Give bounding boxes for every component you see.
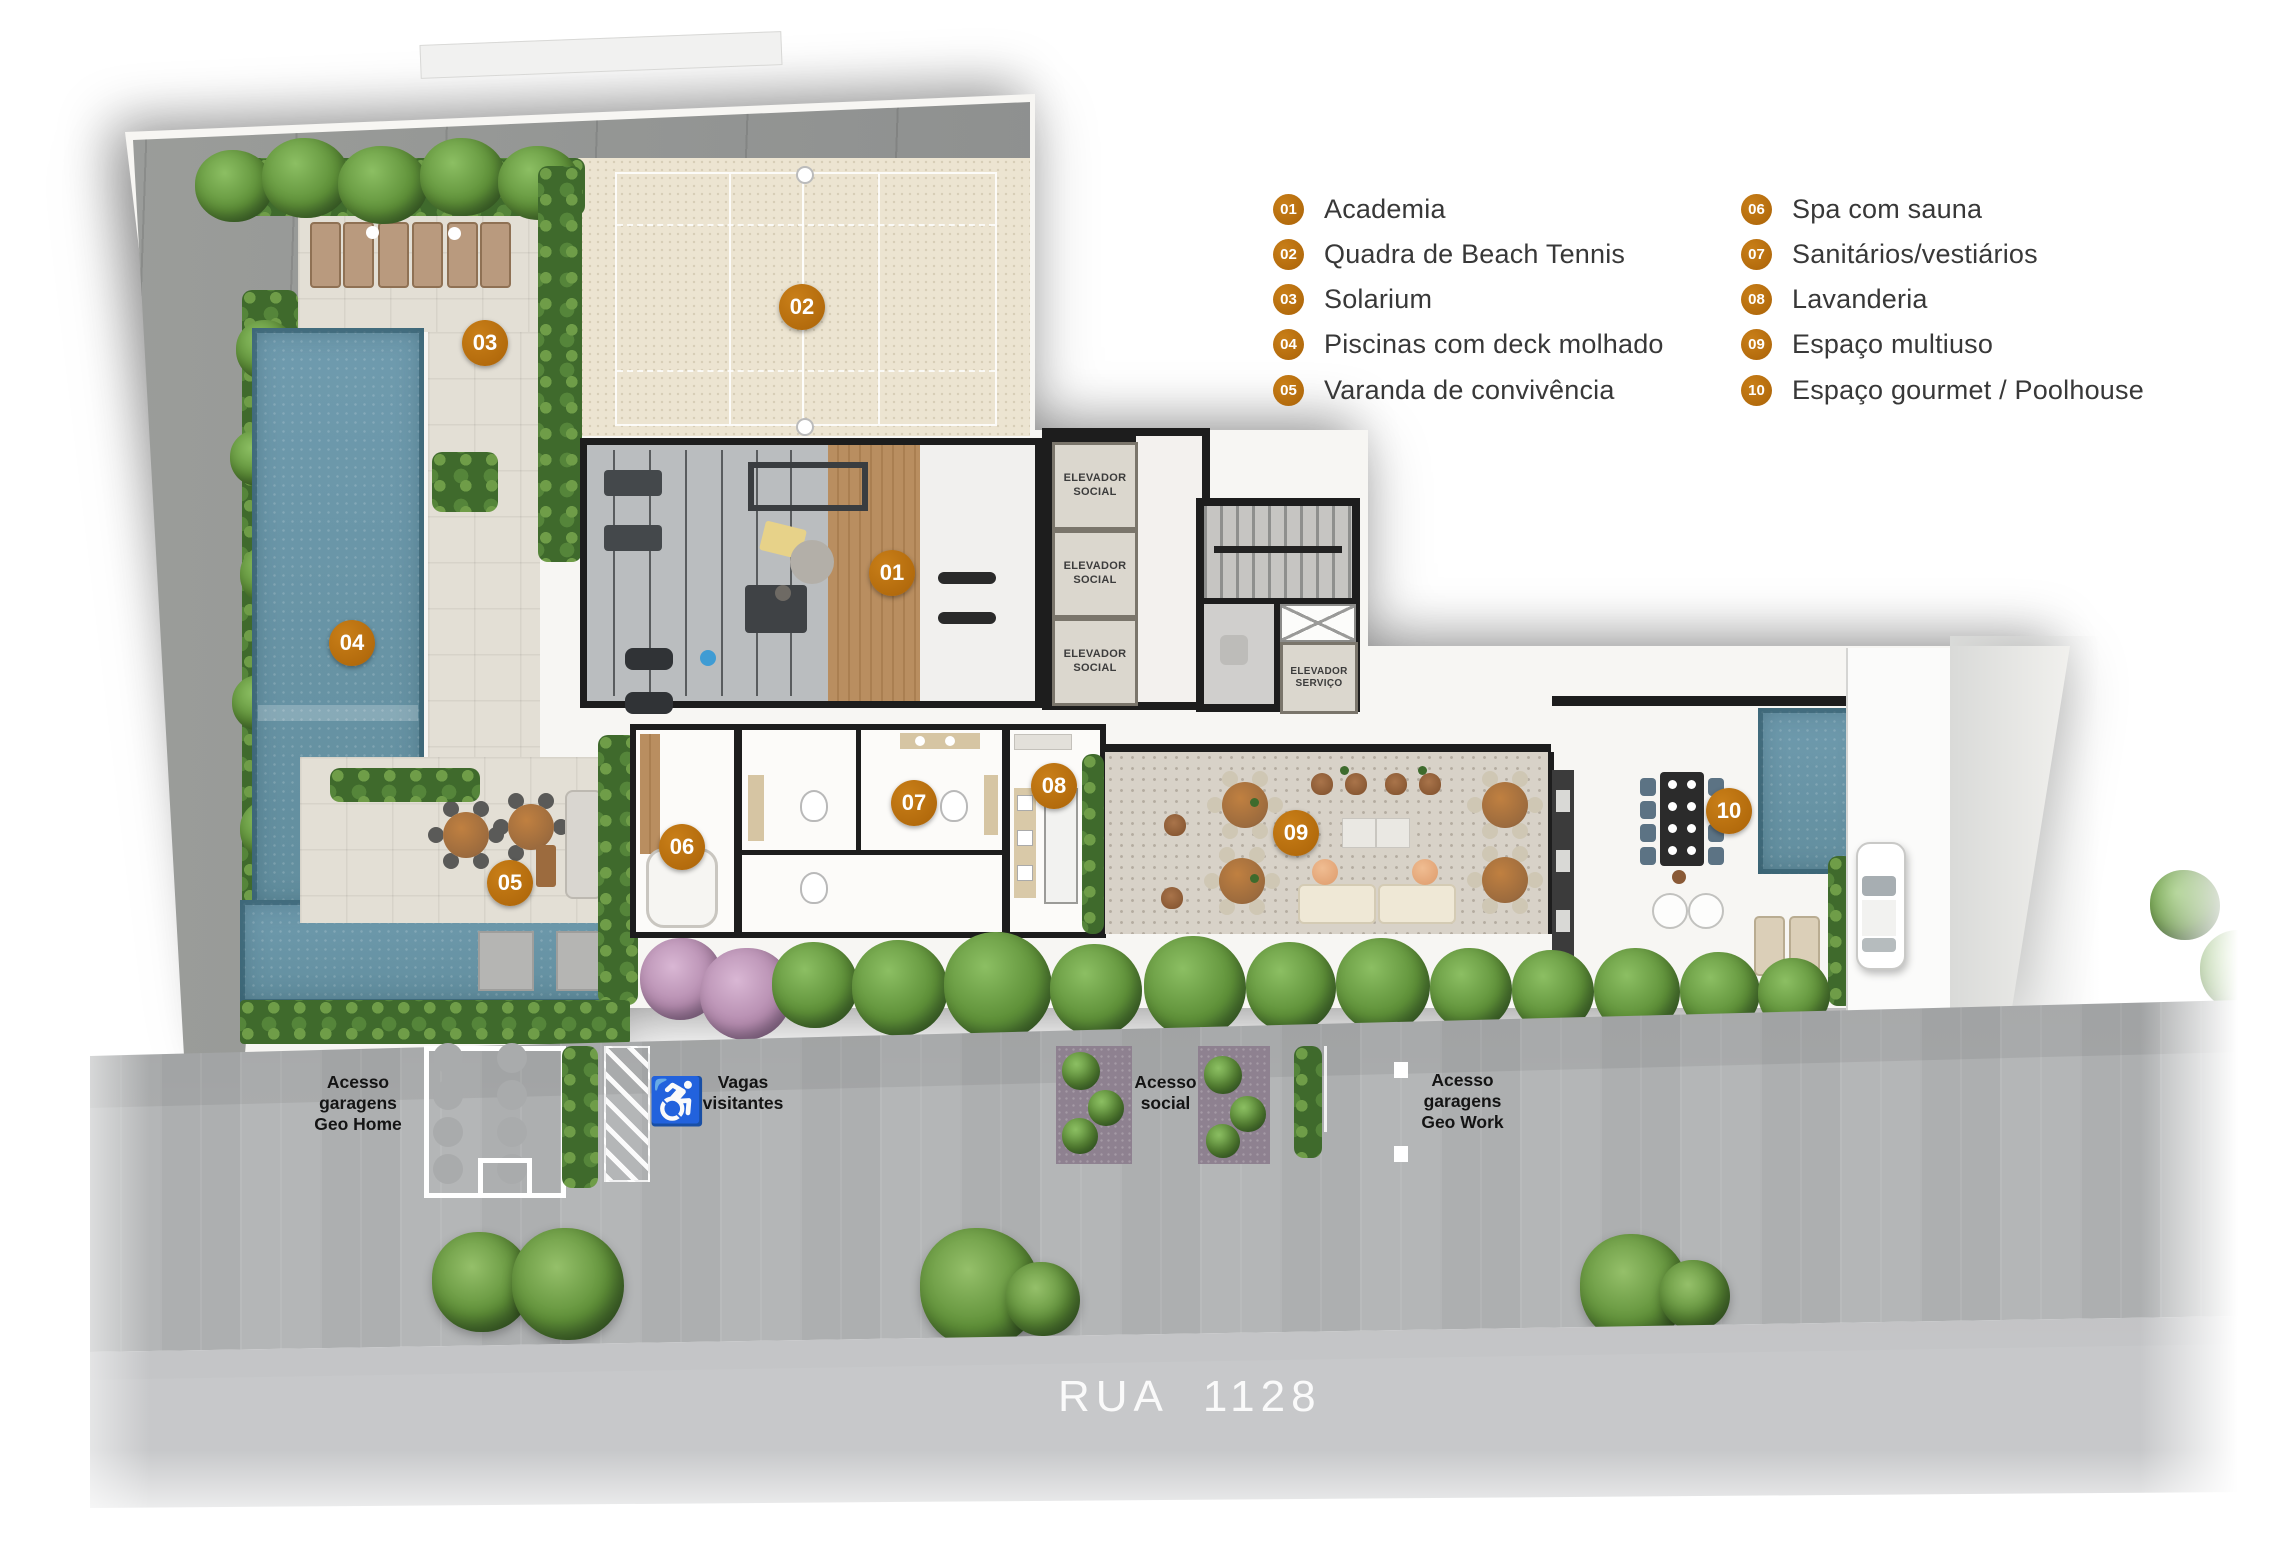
legend-badge: 02 (1273, 239, 1304, 270)
lounge-chair (1312, 859, 1338, 885)
legend-badge: 10 (1741, 375, 1772, 406)
legend-item-10: 10Espaço gourmet / Poolhouse (1741, 374, 2144, 406)
laundry-shelf (1014, 734, 1072, 750)
hedge-solarium-right (538, 166, 582, 562)
shaft-void (1280, 604, 1356, 642)
rack (748, 505, 868, 511)
round-table (1482, 857, 1528, 903)
legend-item-03: 03Solarium (1273, 284, 1432, 316)
legend-label: Sanitários/vestiários (1792, 239, 2038, 270)
round-table (1482, 782, 1528, 828)
legend-badge: 09 (1741, 329, 1772, 360)
path-marking (1324, 1046, 1327, 1132)
palm (1230, 1096, 1266, 1132)
round-lounger (1652, 893, 1688, 929)
elevator-social-3: ELEVADOR SOCIAL (1052, 618, 1138, 706)
hedge-sidewalk-strip (562, 1046, 598, 1188)
gym-table (790, 540, 834, 584)
round-table (508, 804, 554, 850)
legend-item-02: 02Quadra de Beach Tennis (1273, 238, 1625, 270)
toilet (940, 790, 968, 822)
armchair (1161, 887, 1183, 909)
elevator-servico-label: ELEVADOR SERVIÇO (1290, 666, 1347, 691)
palm (1062, 1118, 1098, 1154)
legend-label: Lavanderia (1792, 284, 1928, 315)
plan-marker-08: 08 (1031, 763, 1077, 809)
dumbbell-rack (938, 572, 996, 584)
legend-badge: 07 (1741, 239, 1772, 270)
multiuso-top-wall (1105, 744, 1551, 752)
legend-badge: 03 (1273, 284, 1304, 315)
plan-marker-10: 10 (1706, 788, 1752, 834)
round-table (443, 812, 489, 858)
bush (2200, 930, 2280, 1010)
plant-pot (1340, 766, 1349, 775)
legend-label: Espaço multiuso (1792, 329, 1993, 360)
plan-marker-04: 04 (329, 620, 375, 666)
stair-rail (1214, 546, 1342, 553)
armchair (1164, 814, 1186, 836)
side-table (448, 227, 461, 240)
armchair (1385, 773, 1407, 795)
plan-marker-01: 01 (869, 550, 915, 596)
exercise-ball (700, 650, 716, 666)
sink (945, 736, 955, 746)
legend-label: Solarium (1324, 284, 1432, 315)
sofa (1378, 884, 1456, 924)
street-tree (1660, 1260, 1730, 1330)
bush (1430, 948, 1512, 1030)
plan-marker-05: 05 (487, 860, 533, 906)
legend-item-01: 01Academia (1273, 193, 1446, 225)
legend-label: Varanda de convivência (1324, 375, 1615, 406)
sun-lounger (378, 222, 409, 288)
legend-label: Academia (1324, 194, 1446, 225)
palm (1206, 1124, 1240, 1158)
legend-item-07: 07Sanitários/vestiários (1741, 238, 2038, 270)
dining-chair (1640, 801, 1656, 819)
plant-pot (1250, 874, 1259, 883)
spin-bike (625, 692, 673, 714)
legend-badge: 04 (1273, 329, 1304, 360)
bush (1336, 938, 1430, 1032)
street-tree (512, 1228, 624, 1340)
legend-badge: 06 (1741, 194, 1772, 225)
sink-counter (900, 733, 980, 749)
gym-chair (775, 585, 791, 601)
plan-marker-03: 03 (462, 320, 508, 366)
dumbbell-rack (938, 612, 996, 624)
elevator-lobby (1136, 436, 1202, 702)
sun-lounger (412, 222, 443, 288)
round-lounger (1688, 893, 1724, 929)
side-table (1672, 870, 1686, 884)
elevator-social-label: ELEVADOR SOCIAL (1064, 648, 1127, 676)
legend-label: Quadra de Beach Tennis (1324, 239, 1625, 270)
coffee-table (1342, 818, 1376, 848)
round-table (1222, 782, 1268, 828)
label-vagas-visitantes: Vagas visitantes (688, 1072, 798, 1114)
solarium-walkway (428, 332, 540, 760)
armchair (1345, 773, 1367, 795)
elevator-social-1: ELEVADOR SOCIAL (1052, 442, 1138, 530)
bush (772, 942, 858, 1028)
car (1856, 842, 1906, 970)
treadmill (604, 525, 662, 551)
label-acesso-garagens-geo-work: Acesso garagens Geo Work (1400, 1070, 1525, 1133)
wc-bench (748, 775, 764, 841)
wet-deck-platform (478, 931, 534, 991)
hedge-bottom-band (240, 1000, 630, 1044)
rack (748, 462, 868, 468)
armchair (1419, 773, 1441, 795)
dining-table (1660, 772, 1704, 866)
crosswalk-hatch (604, 1046, 650, 1182)
legend-label: Spa com sauna (1792, 194, 1982, 225)
legend-badge: 01 (1273, 194, 1304, 225)
street-name: RUA 1128 (1058, 1372, 1322, 1422)
dining-chair (1640, 847, 1656, 865)
utility-fixture (1220, 635, 1248, 665)
legend-item-08: 08Lavanderia (1741, 284, 1928, 316)
plant-pot (1418, 766, 1427, 775)
hedge-terrace-top (330, 768, 480, 802)
hedge-sidewalk-strip (1294, 1046, 1322, 1158)
legend-item-05: 05Varanda de convivência (1273, 374, 1615, 406)
sauna-deck (640, 734, 660, 854)
legend-badge: 05 (1273, 375, 1304, 406)
coffee-table (1376, 818, 1410, 848)
legend-item-09: 09Espaço multiuso (1741, 329, 1993, 361)
gourmet-top-wall (1552, 696, 1858, 706)
side-table (366, 226, 379, 239)
plan-marker-02: 02 (779, 284, 825, 330)
palm (195, 150, 273, 222)
sofa (1298, 884, 1376, 924)
net-post-bottom (796, 418, 814, 436)
treadmill (604, 470, 662, 496)
bush (2150, 870, 2220, 940)
street-tree (1006, 1262, 1080, 1336)
toilet (800, 872, 828, 904)
elevator-servico: ELEVADOR SERVIÇO (1280, 642, 1358, 714)
dining-chair (1640, 824, 1656, 842)
gate-post (1394, 1146, 1408, 1162)
lounge-chair (1412, 859, 1438, 885)
sun-lounger (310, 222, 341, 288)
terrace-bench (536, 845, 556, 887)
bush (1050, 944, 1142, 1036)
dining-chair (1708, 847, 1724, 865)
label-acesso-social: Acesso social (1108, 1072, 1223, 1114)
plant-pot (1250, 798, 1259, 807)
elevator-social-2: ELEVADOR SOCIAL (1052, 530, 1138, 618)
legend-badge: 08 (1741, 284, 1772, 315)
bush (1144, 936, 1246, 1038)
bush (852, 940, 948, 1036)
plan-marker-07: 07 (891, 780, 937, 826)
sink (915, 736, 925, 746)
dining-chair (1640, 778, 1656, 796)
palm (1062, 1052, 1100, 1090)
site-plan-image: ELEVADOR SOCIAL ELEVADOR SOCIAL ELEVADOR… (0, 0, 2280, 1555)
bush (944, 932, 1052, 1040)
spin-bike (625, 648, 673, 670)
wc-bench (984, 775, 998, 835)
elevator-social-label: ELEVADOR SOCIAL (1064, 560, 1127, 588)
net-post-top (796, 166, 814, 184)
plan-marker-09: 09 (1273, 810, 1319, 856)
pool-wet-deck-step (258, 705, 418, 721)
palm (338, 146, 428, 224)
armchair (1311, 773, 1333, 795)
legend-item-04: 04Piscinas com deck molhado (1273, 329, 1664, 361)
plan-marker-06: 06 (659, 824, 705, 870)
legend-label: Piscinas com deck molhado (1324, 329, 1664, 360)
hedge-box (432, 452, 498, 512)
legend-item-06: 06Spa com sauna (1741, 193, 1982, 225)
elevator-social-label: ELEVADOR SOCIAL (1064, 472, 1127, 500)
hedge-09-left (1082, 754, 1104, 934)
toilet (800, 790, 828, 822)
garage-notch (478, 1158, 532, 1198)
sun-lounger (480, 222, 511, 288)
palm (420, 138, 506, 216)
area-sanitarios (742, 730, 1002, 932)
label-acesso-garagens-geo-home: Acesso garagens Geo Home (288, 1072, 428, 1135)
bush (1246, 942, 1336, 1032)
palm (262, 138, 350, 218)
legend-label: Espaço gourmet / Poolhouse (1792, 375, 2144, 406)
